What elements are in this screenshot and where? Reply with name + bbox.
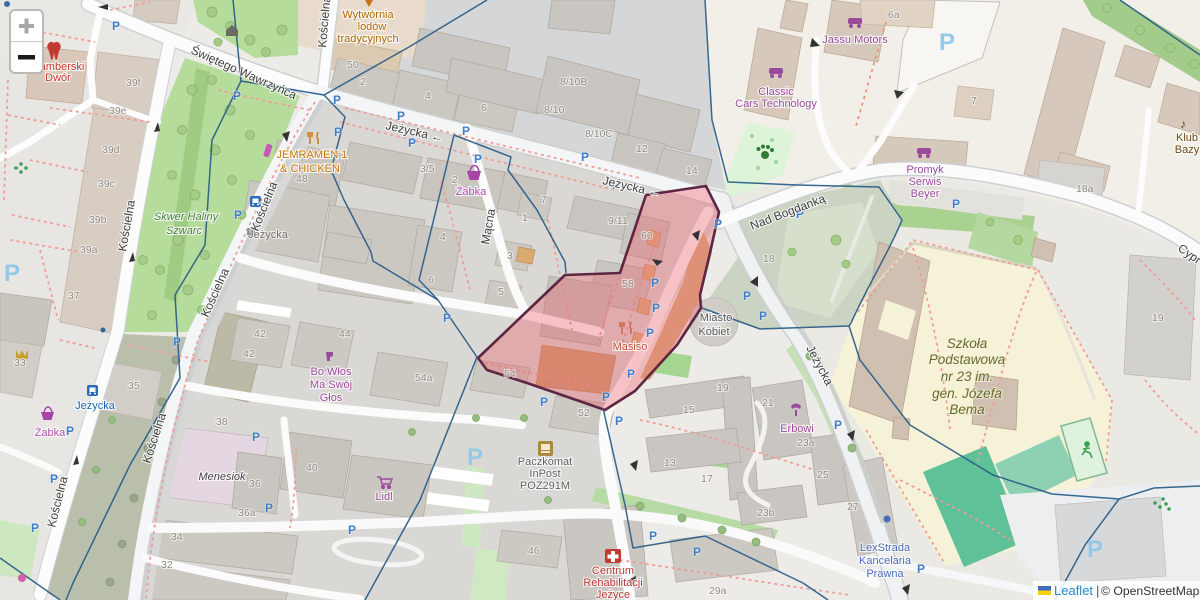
svg-text:3/5: 3/5 — [420, 163, 435, 175]
svg-text:P: P — [467, 444, 483, 471]
svg-text:P: P — [233, 89, 241, 103]
svg-text:Podstawowa: Podstawowa — [929, 352, 1006, 367]
svg-text:P: P — [834, 418, 842, 432]
svg-text:Cars Technology: Cars Technology — [735, 98, 817, 110]
svg-text:Kobiet: Kobiet — [698, 326, 729, 338]
svg-text:34: 34 — [171, 531, 183, 543]
svg-text:© OpenStreetMap: © OpenStreetMap — [1101, 584, 1200, 598]
svg-text:50: 50 — [347, 59, 359, 71]
svg-text:Beyer: Beyer — [911, 188, 940, 200]
svg-text:Jeżycka: Jeżycka — [248, 229, 289, 241]
svg-text:5: 5 — [498, 286, 504, 298]
svg-text:Jassu Motors: Jassu Motors — [822, 34, 888, 46]
svg-text:P: P — [759, 309, 767, 323]
svg-text:9/11: 9/11 — [608, 215, 628, 227]
svg-text:nr 23 im.: nr 23 im. — [941, 369, 994, 384]
svg-text:6a: 6a — [888, 9, 900, 21]
svg-text:Szwarc: Szwarc — [166, 225, 203, 237]
svg-text:3: 3 — [507, 250, 513, 262]
svg-text:18a: 18a — [1076, 183, 1094, 195]
svg-text:40: 40 — [306, 462, 318, 474]
svg-text:36: 36 — [249, 478, 261, 490]
svg-text:4: 4 — [425, 90, 431, 102]
svg-text:P: P — [714, 217, 722, 231]
svg-text:Classic: Classic — [758, 86, 794, 98]
svg-text:P: P — [333, 93, 341, 107]
svg-text:P: P — [649, 529, 657, 543]
svg-text:P: P — [348, 523, 356, 537]
svg-text:P: P — [952, 197, 960, 211]
svg-text:Lidl: Lidl — [375, 491, 392, 503]
svg-text:12: 12 — [636, 143, 648, 155]
svg-text:♪: ♪ — [1180, 117, 1186, 131]
svg-text:60: 60 — [641, 230, 653, 242]
svg-text:39e: 39e — [109, 105, 127, 117]
svg-text:Głos: Głos — [320, 392, 343, 404]
svg-text:Ma Swój: Ma Swój — [310, 379, 352, 391]
svg-text:Promyk: Promyk — [906, 164, 944, 176]
svg-text:Serwis: Serwis — [908, 176, 942, 188]
svg-text:39d: 39d — [102, 144, 120, 156]
svg-text:Klub: Klub — [1176, 132, 1198, 144]
svg-text:Bema: Bema — [949, 402, 985, 417]
svg-text:P: P — [474, 152, 482, 166]
svg-text:P: P — [743, 289, 751, 303]
svg-text:Prawna: Prawna — [866, 568, 904, 580]
svg-text:Menesiok: Menesiok — [198, 471, 246, 483]
svg-text:JEMRAMEN 1: JEMRAMEN 1 — [277, 149, 348, 161]
svg-text:P: P — [112, 19, 120, 33]
svg-text:P: P — [652, 301, 660, 315]
svg-text:Żabka: Żabka — [456, 185, 487, 198]
svg-text:Skwer Haliny: Skwer Haliny — [154, 211, 220, 223]
svg-text:P: P — [693, 545, 701, 559]
svg-text:P: P — [646, 326, 654, 340]
svg-text:29a: 29a — [709, 585, 727, 597]
svg-text:P: P — [66, 424, 74, 438]
svg-text:23a: 23a — [797, 437, 815, 449]
svg-text:P: P — [265, 501, 273, 515]
svg-text:Erbowi: Erbowi — [780, 423, 814, 435]
svg-text:P: P — [443, 311, 451, 325]
svg-text:Bazy: Bazy — [1175, 144, 1200, 156]
svg-text:Kancelaria: Kancelaria — [859, 555, 912, 567]
svg-text:Leaflet: Leaflet — [1054, 583, 1093, 598]
svg-text:39b: 39b — [89, 214, 107, 226]
svg-text:7: 7 — [971, 95, 977, 107]
svg-text:P: P — [602, 390, 610, 404]
svg-text:P: P — [462, 124, 470, 138]
svg-text:2: 2 — [452, 174, 458, 186]
svg-text:39a: 39a — [80, 244, 98, 256]
svg-text:P: P — [917, 562, 925, 576]
svg-text:8/10B: 8/10B — [560, 76, 587, 88]
svg-text:P: P — [4, 260, 20, 287]
svg-text:P: P — [581, 150, 589, 164]
svg-text:6: 6 — [428, 274, 434, 286]
svg-text:4: 4 — [440, 231, 446, 243]
svg-text:52: 52 — [578, 407, 590, 419]
svg-text:gen. Józefa: gen. Józefa — [932, 386, 1002, 401]
svg-text:|: | — [1096, 583, 1099, 598]
svg-text:Wytwórnia: Wytwórnia — [342, 9, 394, 21]
svg-text:54: 54 — [504, 368, 516, 380]
svg-text:Bo Włos: Bo Włos — [311, 366, 352, 378]
svg-text:Paczkomat: Paczkomat — [518, 456, 572, 468]
svg-text:P: P — [651, 276, 659, 290]
svg-text:Centrum: Centrum — [592, 565, 634, 577]
svg-text:Jeżyce: Jeżyce — [596, 589, 630, 600]
svg-text:& CHICKEN: & CHICKEN — [280, 163, 340, 175]
svg-text:21: 21 — [762, 397, 774, 409]
svg-text:1: 1 — [522, 212, 528, 224]
svg-text:Miasto: Miasto — [700, 312, 732, 324]
svg-text:Rehabilitacji: Rehabilitacji — [583, 577, 642, 589]
svg-text:8/10: 8/10 — [544, 104, 565, 116]
svg-text:33: 33 — [14, 357, 26, 369]
svg-text:Masiso: Masiso — [613, 341, 648, 353]
svg-text:8/10C: 8/10C — [585, 128, 613, 140]
svg-text:6: 6 — [481, 102, 487, 114]
svg-text:7: 7 — [541, 194, 547, 206]
svg-text:P: P — [234, 208, 242, 222]
svg-text:P: P — [540, 395, 548, 409]
svg-text:17: 17 — [701, 473, 713, 485]
svg-text:InPost: InPost — [529, 468, 560, 480]
svg-text:38: 38 — [216, 416, 228, 428]
svg-text:46: 46 — [528, 545, 540, 557]
svg-text:Żabka: Żabka — [35, 426, 66, 439]
svg-text:LexStrada: LexStrada — [860, 542, 911, 554]
svg-text:25: 25 — [817, 469, 829, 481]
svg-text:Dwór: Dwór — [45, 72, 71, 84]
svg-text:58: 58 — [622, 278, 634, 290]
svg-text:P: P — [31, 521, 39, 535]
svg-text:POZ291M: POZ291M — [520, 480, 570, 492]
svg-text:tradycyjnych: tradycyjnych — [337, 33, 398, 45]
svg-text:23b: 23b — [757, 507, 775, 519]
svg-text:18: 18 — [763, 253, 775, 265]
svg-text:13: 13 — [664, 457, 676, 469]
svg-text:32: 32 — [161, 559, 173, 571]
svg-text:35: 35 — [128, 380, 140, 392]
svg-text:lodów: lodów — [358, 21, 387, 33]
svg-text:42: 42 — [254, 328, 266, 340]
svg-text:P: P — [615, 414, 623, 428]
svg-text:P: P — [939, 29, 955, 56]
svg-text:39c: 39c — [98, 178, 115, 190]
svg-text:15: 15 — [683, 404, 695, 416]
svg-text:44: 44 — [339, 328, 351, 340]
svg-text:27: 27 — [847, 501, 859, 513]
svg-text:2: 2 — [360, 76, 366, 88]
svg-text:42: 42 — [243, 348, 255, 360]
svg-text:P: P — [252, 430, 260, 444]
svg-text:P: P — [627, 367, 635, 381]
svg-text:19: 19 — [717, 382, 729, 394]
svg-text:37: 37 — [68, 290, 80, 302]
svg-text:P: P — [173, 335, 181, 349]
svg-text:P: P — [334, 125, 342, 139]
svg-text:14: 14 — [686, 165, 698, 177]
svg-text:36a: 36a — [238, 507, 256, 519]
svg-text:54a: 54a — [415, 372, 433, 384]
svg-text:19: 19 — [1152, 312, 1164, 324]
svg-text:Szkoła: Szkoła — [947, 336, 988, 351]
svg-text:P: P — [1087, 536, 1103, 563]
svg-text:Jeżycka: Jeżycka — [75, 400, 116, 412]
svg-text:39f: 39f — [126, 77, 141, 89]
